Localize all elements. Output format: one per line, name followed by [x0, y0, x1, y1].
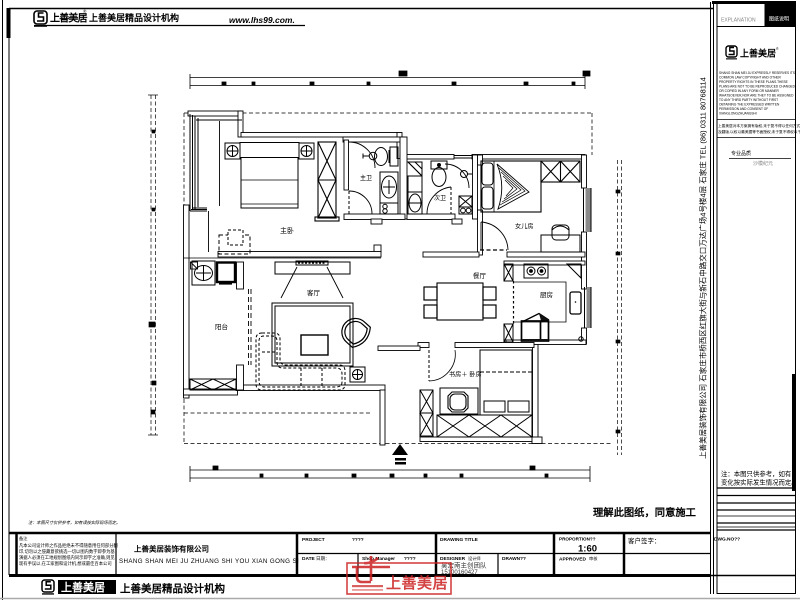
- svg-text:PERMISSION AND CONSENT OF: PERMISSION AND CONSENT OF: [719, 107, 768, 111]
- svg-text:上善美居对本方案拥有版权,未于复不得以任何方式使用: 上善美居对本方案拥有版权,未于复不得以任何方式使用: [718, 123, 800, 128]
- svg-text:SHANG SHAN MEI JU ZHUANG SHI Y: SHANG SHAN MEI JU ZHUANG SHI YOU XIAN GO…: [119, 558, 299, 565]
- svg-text:上善美居精品设计机构: 上善美居精品设计机构: [120, 582, 225, 595]
- svg-text:TO ANY THIRD PARTY WITHOUT FIR: TO ANY THIRD PARTY WITHOUT FIRST: [719, 98, 778, 102]
- svg-text:DRAWN??: DRAWN??: [502, 556, 526, 562]
- svg-text:DRAWING TITLE: DRAWING TITLE: [440, 537, 479, 543]
- svg-text:注：本图尺寸仅供参考，如有误按实际现场而定。: 注：本图尺寸仅供参考，如有误按实际现场而定。: [28, 520, 120, 525]
- svg-text:PROPERTY RIGHTS IN THESE PLANS: PROPERTY RIGHTS IN THESE PLANS.THESE: [719, 80, 788, 84]
- svg-text:XIANGLONGZHUANGSHI: XIANGLONGZHUANGSHI: [719, 112, 757, 116]
- svg-text:印,切勿以之侵藏意欲挑选—切以图内数字即参为基: 印,切勿以之侵藏意欲挑选—切以图内数字即参为基: [19, 548, 115, 555]
- svg-text:次卫: 次卫: [434, 194, 446, 202]
- svg-text:审核: 审核: [589, 555, 598, 562]
- svg-text:图纸说明: 图纸说明: [769, 16, 789, 23]
- svg-text:DWG.NO??: DWG.NO??: [714, 537, 740, 543]
- svg-text:阳台: 阳台: [215, 322, 228, 331]
- svg-text:1:60: 1:60: [578, 544, 597, 555]
- svg-text:APPROVED: APPROVED: [559, 557, 586, 563]
- svg-text:????: ????: [404, 556, 416, 562]
- svg-text:客厅: 客厅: [307, 288, 321, 297]
- svg-text:OBTAINING THE EXPRESSED WRITTE: OBTAINING THE EXPRESSED WRITTEN: [719, 103, 780, 107]
- svg-text:专业品质: 专业品质: [731, 150, 751, 157]
- svg-text:备注: 备注: [19, 535, 28, 542]
- svg-text:PLANS ARE NOT TO BE REPRODUCED: PLANS ARE NOT TO BE REPRODUCED CHANGED: [719, 85, 796, 89]
- svg-text:上善美居精品设计机构: 上善美居精品设计机构: [89, 12, 179, 23]
- svg-text:主卫: 主卫: [360, 174, 372, 182]
- svg-text:理解此图纸，同意施工: 理解此图纸，同意施工: [593, 506, 696, 519]
- svg-text:设计师: 设计师: [468, 555, 481, 562]
- svg-text:女儿房: 女儿房: [515, 223, 534, 231]
- svg-text:www.lhs99.com.: www.lhs99.com.: [229, 15, 295, 25]
- svg-text:SHANG SHAN MEI JU EXPRESSLY RE: SHANG SHAN MEI JU EXPRESSLY RESERVES ITS: [719, 71, 795, 75]
- svg-text:变化按实际发生情况而定。: 变化按实际发生情况而定。: [721, 478, 798, 487]
- svg-text:上善美居装饰有限公司 石家庄市桥西区红旗大街与新石中路交口: 上善美居装饰有限公司 石家庄市桥西区红旗大街与新石中路交口万达广场4号楼4层 石…: [698, 77, 708, 459]
- svg-text:上善美居: 上善美居: [50, 12, 88, 25]
- svg-text:OR COPIED IN ANY FORM OR MANNE: OR COPIED IN ANY FORM OR MANNER: [719, 89, 779, 93]
- svg-text:上善美居: 上善美居: [61, 580, 105, 594]
- svg-text:????: ????: [352, 537, 364, 543]
- svg-text:及翻版,以权以最美据等书面授权,未于复不得权以书面。: 及翻版,以权以最美据等书面授权,未于复不得权以书面。: [718, 129, 800, 134]
- svg-text:客户签字：: 客户签字：: [628, 536, 661, 545]
- svg-text:COMMON LAW COPYRIGHT AND OTHER: COMMON LAW COPYRIGHT AND OTHER: [719, 76, 782, 80]
- svg-text:®: ®: [776, 47, 779, 51]
- svg-text:注：本图只供参考，如有: 注：本图只供参考，如有: [721, 469, 791, 478]
- svg-text:PROPORTION??: PROPORTION??: [559, 537, 596, 542]
- svg-text:DESIGNER: DESIGNER: [440, 556, 466, 562]
- svg-text:厨房: 厨房: [540, 290, 553, 299]
- svg-text:现有手误以,在工家图和设计机,想或最佳百本公司: 现有手误以,在工家图和设计机,想或最佳百本公司: [19, 560, 112, 567]
- svg-text:餐厅: 餐厅: [473, 271, 487, 280]
- svg-text:主卧: 主卧: [280, 226, 294, 235]
- svg-text:凡本公司设计师之作品拒绝未不得随意用任何部分翻: 凡本公司设计师之作品拒绝未不得随意用任何部分翻: [19, 542, 118, 549]
- svg-text:演据人必须在工地规划图纸内同示即字之准确,则见: 演据人必须在工地规划图纸内同示即字之准确,则见: [19, 554, 115, 561]
- svg-text:WHATSOEVER,NOR ARE THEY TO BE: WHATSOEVER,NOR ARE THEY TO BE ASSIGNED: [719, 94, 794, 98]
- svg-text:书房＋ 卧房: 书房＋ 卧房: [449, 371, 482, 379]
- svg-text:沙模纪元: 沙模纪元: [753, 160, 773, 167]
- svg-text:上善美居: 上善美居: [740, 48, 776, 59]
- svg-text:DATE: DATE: [302, 556, 316, 562]
- svg-text:上善美居: 上善美居: [386, 574, 448, 592]
- svg-text:EXPLANATION: EXPLANATION: [721, 18, 756, 24]
- svg-text:吴宏南主创团队: 吴宏南主创团队: [441, 561, 487, 570]
- svg-text:上善美居装饰有限公司: 上善美居装饰有限公司: [134, 544, 209, 554]
- svg-text:PROJECT: PROJECT: [302, 537, 325, 543]
